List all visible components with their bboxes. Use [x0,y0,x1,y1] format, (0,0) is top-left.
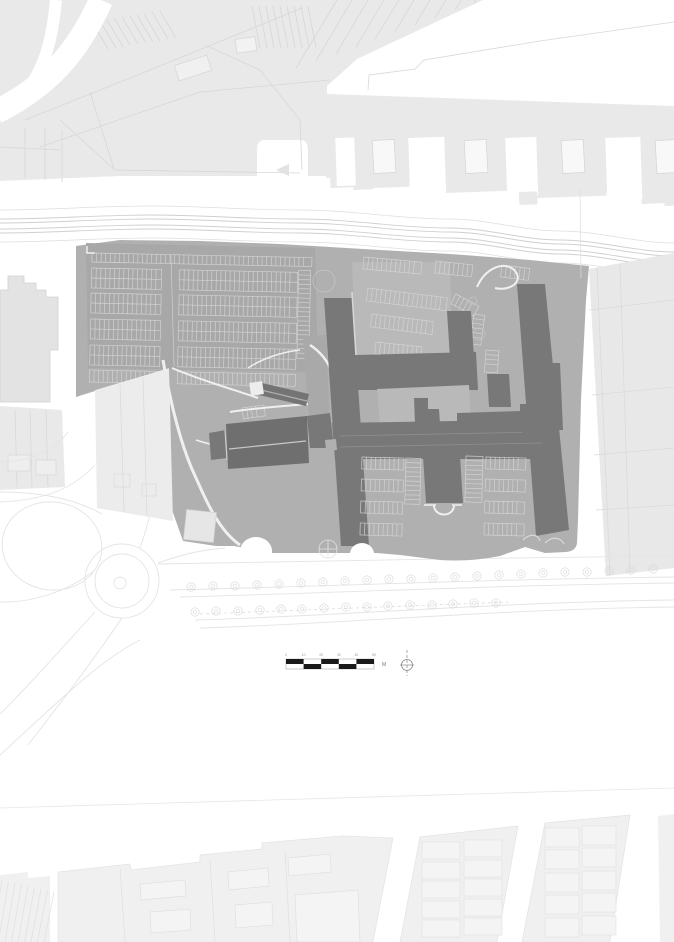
svg-text:0: 0 [285,653,287,657]
svg-text:20: 20 [319,653,323,657]
svg-text:10: 10 [302,653,306,657]
svg-text:30: 30 [337,653,341,657]
svg-text:50: 50 [372,653,376,657]
svg-text:M: M [382,662,386,668]
svg-text:40: 40 [354,653,358,657]
